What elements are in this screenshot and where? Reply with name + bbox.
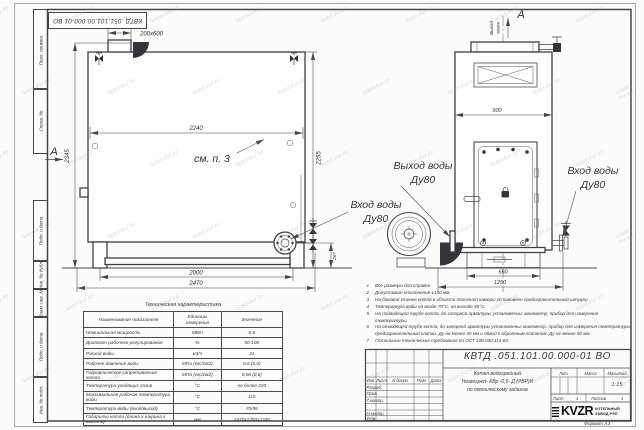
sheet-value: 1 [576, 396, 578, 401]
svg-text:Выход воды: Выход воды [393, 160, 452, 172]
sign-tkontr: Т.контр. [367, 398, 384, 403]
product-title-line: Heatexpert- КВр -0,6- Д (РВР)И [444, 378, 551, 386]
dim-2240: 2240 [188, 126, 203, 132]
mass-label: Масса [577, 371, 604, 376]
svg-text:Вход воды: Вход воды [568, 165, 619, 177]
margin-cell-vzam-inv: Взам. инв. № [33, 288, 48, 318]
boiler-front-view: Выход газов А 900 [388, 9, 619, 292]
note-item: 1Все размеры для справок [360, 283, 632, 290]
spec-col-name: Наименование показателя [84, 312, 174, 328]
kvzr-logo: KVZR [561, 405, 593, 418]
company-name: КОТЕЛЬНЫЙ ЗАВОД РЭП [595, 407, 620, 416]
format-label: Формат А3 [584, 422, 610, 427]
margin-cell-perv-primen: Перв. примен. [33, 9, 48, 90]
sheet-label: Лист [553, 396, 564, 401]
note-item: 2Допустимое отклонение ±100 мм. [360, 290, 632, 297]
outlet-water-label: Выход воды Ду80 [393, 160, 452, 237]
spec-table: Наименование показателя Единицы измерени… [83, 311, 283, 426]
product-title-line: Котел водогрейный [444, 370, 551, 378]
dim-2000: 2000 [188, 271, 203, 277]
stamp-doc-number: КВТД .051.101.00.000-01 ВО [53, 17, 142, 24]
sheets-label: Листов [591, 396, 606, 401]
scale-label: Масштаб [604, 371, 630, 376]
boiler-side-view: 200x600 2240 см. п. 3 2345 А 2255 267 [45, 29, 402, 292]
svg-text:Ду80: Ду80 [410, 174, 436, 186]
sign-nkontr: Н.контр. [367, 411, 385, 416]
inlet-water-label-side: Вход воды Ду80 [291, 199, 402, 239]
sign-utv: Утв. [367, 416, 377, 421]
table-row: Диапазон рабочего регулирования%50-100 [84, 338, 283, 348]
dim-267: 267 [332, 252, 338, 261]
dim-2470: 2470 [188, 281, 203, 287]
note-item: 6На отводящей трубе котла, до запорной а… [360, 324, 632, 338]
table-row: Гидравлическое сопротивление котлаМПа (к… [84, 369, 283, 381]
rev-col-podp: Подп [414, 378, 429, 383]
margin-cell-inv-dubl: Инв. № дубл. [33, 260, 48, 290]
dim-2345: 2345 [65, 149, 71, 164]
front-inlet-assembly [552, 221, 571, 251]
note-item: 7Остальные технические требования по ОСТ… [360, 338, 632, 345]
technical-notes: 1Все размеры для справок 2Допустимое отк… [360, 283, 632, 345]
drawing-sheet: 200x600 2240 см. п. 3 2345 А 2255 267 [0, 0, 644, 430]
dim-200x600: 200x600 [139, 32, 164, 38]
section-a-left: А [49, 146, 57, 158]
rev-col-list: Лист [376, 378, 387, 383]
rev-col-izm: Изм [365, 378, 376, 383]
margin-cell-sprav-no: Справ. № [33, 88, 48, 154]
blower-fan [388, 213, 464, 268]
table-row: Максимальная рабочая температура воды°С1… [84, 391, 283, 403]
scale-value: 1:15 [604, 382, 630, 388]
rev-col-data: Дата [429, 378, 443, 383]
spec-col-units: Единицы измерения [174, 312, 222, 328]
svg-text:Ду80: Ду80 [580, 179, 606, 191]
doc-number: КВТД .051.101.00.000-01 ВО [444, 351, 631, 362]
spec-col-value: Значение [221, 312, 282, 328]
flue-stub [108, 40, 131, 52]
note-item: 4Температура воды на входе 70°С, на выхо… [360, 304, 632, 311]
margin-cell-podp-data-1: Подп. и дата [33, 200, 48, 262]
table-row: Температура уходящих газов°Сне более 220 [84, 381, 283, 391]
margin-cell-podp-data-2: Подп. и дата [33, 316, 48, 378]
table-row: Расход водым3/ч21 [84, 348, 283, 358]
section-a-top: А [516, 9, 524, 21]
logo-stripes-icon [552, 406, 559, 417]
outlet-flange [450, 231, 455, 252]
top-tap-valve [539, 37, 562, 52]
table-row: Рабочее давление водыМПа (кгс/см2)0,6 (6… [84, 359, 283, 369]
table-row: Номинальная мощностьМВт0,6 [84, 328, 283, 338]
see-note-label: см. п. 3 [194, 153, 230, 165]
gas-exit-label-1: Выход [489, 21, 494, 35]
note-item: 3На боковой стенке котла в области топоч… [360, 297, 632, 304]
spec-table-title: Техническая характеристика [83, 302, 283, 308]
spec-header-row: Наименование показателя Единицы измерени… [84, 312, 283, 328]
gas-exit-label-2: газов [496, 22, 501, 34]
lit-label: Лит. [551, 371, 577, 376]
top-left-doc-stamp: КВТД .051.101.00.000-01 ВО [48, 12, 147, 29]
svg-text:Вход воды: Вход воды [351, 199, 402, 211]
rev-col-ndokum: N докум. [387, 378, 414, 383]
product-title: Котел водогрейный Heatexpert- КВр -0,6- … [444, 370, 551, 394]
company-logo-block: KVZR КОТЕЛЬНЫЙ ЗАВОД РЭП [552, 403, 630, 420]
product-title-line: по техническому задание [444, 386, 551, 394]
dim-2255: 2255 [317, 151, 323, 166]
sign-razrab: Разраб. [367, 385, 383, 390]
inlet-water-label-front: Вход воды Ду80 [563, 165, 619, 236]
margin-cell-inv-podl: Инв. № подл. [33, 376, 48, 423]
table-row: Температура воды (вход/выход)°С70/95 [84, 403, 283, 413]
flue-collar [471, 42, 539, 52]
furnace-door [464, 142, 539, 250]
sheets-value: 1 [621, 396, 623, 401]
side-lug [80, 188, 88, 197]
sign-prov: Пров. [367, 391, 378, 396]
svg-text:Ду80: Ду80 [363, 213, 389, 225]
table-row: Габариты котла (длина х ширина х высота)… [84, 413, 283, 425]
dim-900: 900 [492, 108, 502, 114]
dim-660: 660 [498, 270, 508, 276]
note-item: 5На подводящей трубе котла, до запорной … [360, 311, 632, 325]
